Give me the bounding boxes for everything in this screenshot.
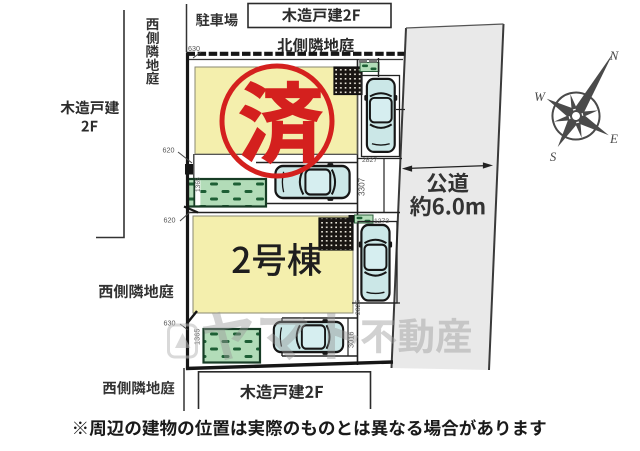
svg-text:3307: 3307	[358, 177, 367, 196]
svg-text:E: E	[609, 131, 618, 146]
svg-text:2827: 2827	[362, 157, 377, 164]
svg-text:S: S	[550, 149, 557, 164]
svg-text:620: 620	[164, 216, 176, 225]
svg-text:620: 620	[163, 146, 175, 155]
svg-text:1365: 1365	[195, 177, 202, 192]
svg-text:2825: 2825	[355, 300, 362, 315]
svg-text:1273: 1273	[374, 218, 389, 225]
svg-text:630: 630	[188, 44, 200, 53]
svg-text:N: N	[609, 48, 620, 63]
svg-text:W: W	[534, 89, 546, 104]
